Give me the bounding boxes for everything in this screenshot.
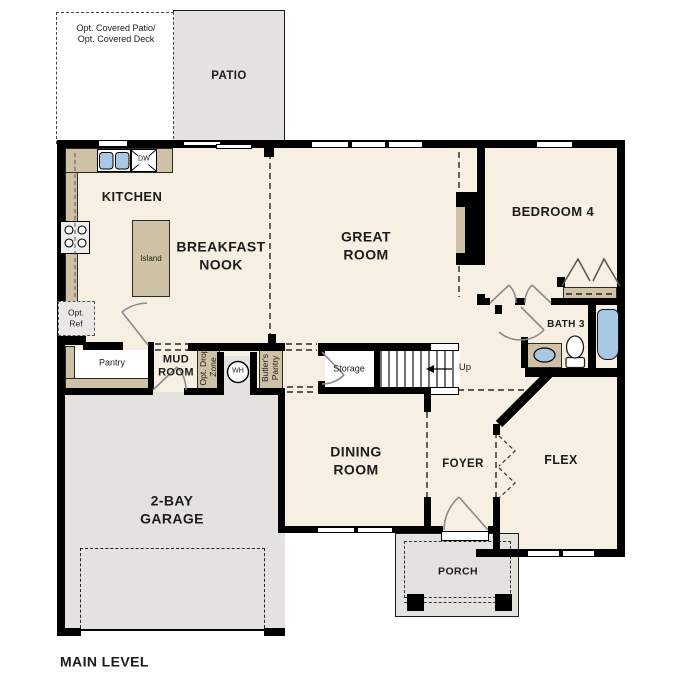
front-door-threshold: [441, 531, 489, 541]
label-foyer: FOYER: [442, 457, 484, 471]
label-mud-room: MUD ROOM: [158, 353, 194, 378]
dining-window: [357, 527, 393, 533]
fireplace-insert: [456, 207, 465, 253]
wall-storage-bottom: [318, 387, 431, 394]
label-kitchen: KITCHEN: [102, 189, 163, 205]
wall-garage-bottom: [264, 628, 285, 636]
label-porch: PORCH: [438, 565, 478, 578]
label-island: Island: [140, 254, 161, 264]
wall-mudroom-left: [148, 342, 154, 390]
floor-plan-image: Opt. Covered Patio/ Opt. Covered Deck PA…: [0, 0, 687, 687]
greatroom-window: [351, 141, 386, 148]
greatroom-window: [388, 141, 423, 148]
flex-window: [527, 550, 560, 557]
wall-wh-niche-right: [250, 352, 257, 393]
wall-storage-left-stub: [318, 351, 325, 356]
label-opt-drop-zone: Opt. Drop Zone: [199, 332, 219, 402]
wall-closet-stub: [557, 277, 565, 287]
label-butlers-pantry: Butler's Pantry: [261, 333, 281, 403]
wall-kitchen-south: [57, 335, 86, 345]
plan-title: MAIN LEVEL: [60, 653, 149, 671]
dining-window: [317, 527, 355, 533]
label-breakfast-nook: BREAKFAST NOOK: [176, 239, 265, 274]
label-great-room: GREAT ROOM: [341, 229, 391, 264]
wall-garage-top: [57, 388, 153, 395]
wall-bed4-bottom: [515, 298, 525, 305]
wall-foyer-flex-stub: [493, 424, 500, 435]
stove: [60, 221, 90, 254]
label-up: Up: [459, 362, 471, 374]
label-pantry: Pantry: [99, 357, 125, 368]
label-wh: WH: [232, 368, 244, 377]
wall-divider-stub: [264, 146, 274, 157]
wall-bath3-stub: [495, 305, 502, 314]
label-opt-covered: Opt. Covered Patio/ Opt. Covered Deck: [56, 23, 176, 46]
label-dining-room: DINING ROOM: [330, 444, 381, 479]
wall-tub-left: [588, 305, 596, 369]
label-flex: FLEX: [544, 453, 578, 469]
wall-vanity-left: [521, 337, 528, 368]
label-opt-ref: Opt. Ref: [68, 307, 84, 328]
label-dw: DW: [137, 156, 151, 165]
label-garage: 2-BAY GARAGE: [140, 493, 204, 528]
stair-railing: [430, 343, 459, 351]
label-bath3: BATH 3: [547, 319, 585, 332]
wall-corridor-top: [83, 342, 123, 350]
bathtub: [597, 309, 619, 360]
wall-foyer-flex: [493, 497, 500, 551]
wall-bed4-bottom: [551, 298, 625, 305]
wall-storage-top: [318, 343, 431, 351]
label-bedroom4: BEDROOM 4: [512, 204, 594, 220]
porch-post: [495, 594, 512, 611]
greatroom-window: [311, 141, 349, 148]
porch-post: [407, 594, 424, 611]
stair-railing: [430, 387, 459, 395]
stairs-area: [378, 350, 460, 388]
patio-slider-door: [216, 144, 252, 149]
bedroom4-window: [536, 141, 573, 148]
label-patio: PATIO: [211, 69, 246, 83]
wall-bath3-bottom: [525, 368, 625, 377]
wall-garage-bottom: [57, 628, 81, 636]
wall-storage-stairs: [374, 351, 380, 388]
wall-foyer-left-stub: [424, 394, 431, 412]
garage-door-dashed: [80, 548, 265, 628]
flex-window: [562, 550, 595, 557]
garage-door-line: [80, 629, 265, 631]
wall-foyer-left: [424, 497, 431, 533]
wall-greatroom-bed4: [477, 148, 485, 193]
sink-cabinet: [97, 149, 131, 172]
wall-bed4-bottom: [477, 298, 490, 305]
wall-garage-dining: [278, 390, 285, 533]
kitchen-window: [98, 140, 128, 147]
bath3-vanity: [527, 343, 562, 368]
label-storage: Storage: [333, 363, 365, 374]
